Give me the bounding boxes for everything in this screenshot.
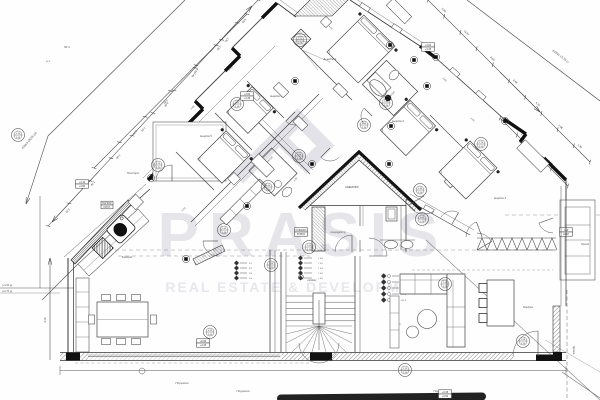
svg-text:5.10: 5.10 bbox=[44, 317, 47, 322]
svg-text:ΗΦ 5: ΗΦ 5 bbox=[401, 299, 407, 302]
svg-text:Πλυσταριό: Πλυσταριό bbox=[127, 171, 140, 175]
svg-text:+3.45: +3.45 bbox=[425, 48, 432, 51]
svg-text:≡ Φ4: ≡ Φ4 bbox=[318, 272, 324, 275]
svg-text:+0.45: +0.45 bbox=[442, 391, 449, 394]
svg-text:ΝΡ 2: ΝΡ 2 bbox=[64, 45, 70, 49]
svg-text:ανεμοφράκτης: ανεμοφράκτης bbox=[330, 231, 346, 234]
svg-text:Πέργκολα: Πέργκολα bbox=[237, 389, 250, 393]
svg-text:(+4.50 μ): (+4.50 μ) bbox=[2, 284, 12, 287]
svg-text:ΑΝΕΜΟΦΡ.: ΑΝΕΜΟΦΡ. bbox=[345, 185, 359, 189]
svg-text:Κουζίνα: Κουζίνα bbox=[523, 305, 533, 309]
svg-text:ΚΛΙΜΑΚΟ: ΚΛΙΜΑΚΟ bbox=[296, 229, 307, 232]
svg-text:(+0.70 μ): (+0.70 μ) bbox=[2, 290, 12, 293]
svg-text:μ.1: μ.1 bbox=[46, 59, 50, 63]
svg-text:+3.45: +3.45 bbox=[200, 344, 207, 347]
svg-text:ΠΑΓΚΟΣ: ΠΑΓΚΟΣ bbox=[102, 202, 112, 205]
svg-text:REAL ESTATE & DEVELOPMENT: REAL ESTATE & DEVELOPMENT bbox=[165, 279, 434, 295]
svg-text:Πέργκολα: Πέργκολα bbox=[176, 381, 189, 385]
svg-text:≡ Φ2: ≡ Φ2 bbox=[318, 262, 324, 265]
svg-text:Κουζίνα: Κουζίνα bbox=[122, 255, 133, 259]
svg-text:+3.45: +3.45 bbox=[244, 97, 251, 100]
svg-text:+0.90: +0.90 bbox=[200, 340, 207, 343]
svg-text:Δωμάτιο 2: Δωμάτιο 2 bbox=[392, 119, 405, 123]
svg-text:Πρασιά: Πρασιά bbox=[572, 346, 576, 355]
svg-text:+4.10: +4.10 bbox=[79, 181, 86, 184]
svg-text:ΚΟΥΖ.: ΚΟΥΖ. bbox=[103, 206, 110, 209]
svg-text:≡ Φ5: ≡ Φ5 bbox=[318, 277, 324, 280]
svg-text:Δωμάτιο 3: Δωμάτιο 3 bbox=[494, 196, 507, 200]
svg-text:+3.00: +3.00 bbox=[425, 44, 432, 47]
svg-text:+3.00: +3.00 bbox=[244, 93, 251, 96]
svg-text:≡ Φ3: ≡ Φ3 bbox=[318, 267, 324, 270]
svg-text:είσοδος: είσοδος bbox=[308, 278, 318, 282]
svg-text:ΣΤΑΣΙΟ: ΣΤΑΣΙΟ bbox=[297, 233, 305, 236]
svg-text:+0.90: +0.90 bbox=[442, 395, 449, 398]
svg-text:≡ Φ1: ≡ Φ1 bbox=[318, 257, 324, 260]
svg-text:Δωμάτιο 5: Δωμάτιο 5 bbox=[200, 134, 213, 138]
svg-text:+4.60: +4.60 bbox=[79, 185, 86, 188]
svg-text:Δωμάτιο 1: Δωμάτιο 1 bbox=[324, 57, 337, 61]
svg-text:Πρασιά: Πρασιά bbox=[581, 243, 590, 246]
